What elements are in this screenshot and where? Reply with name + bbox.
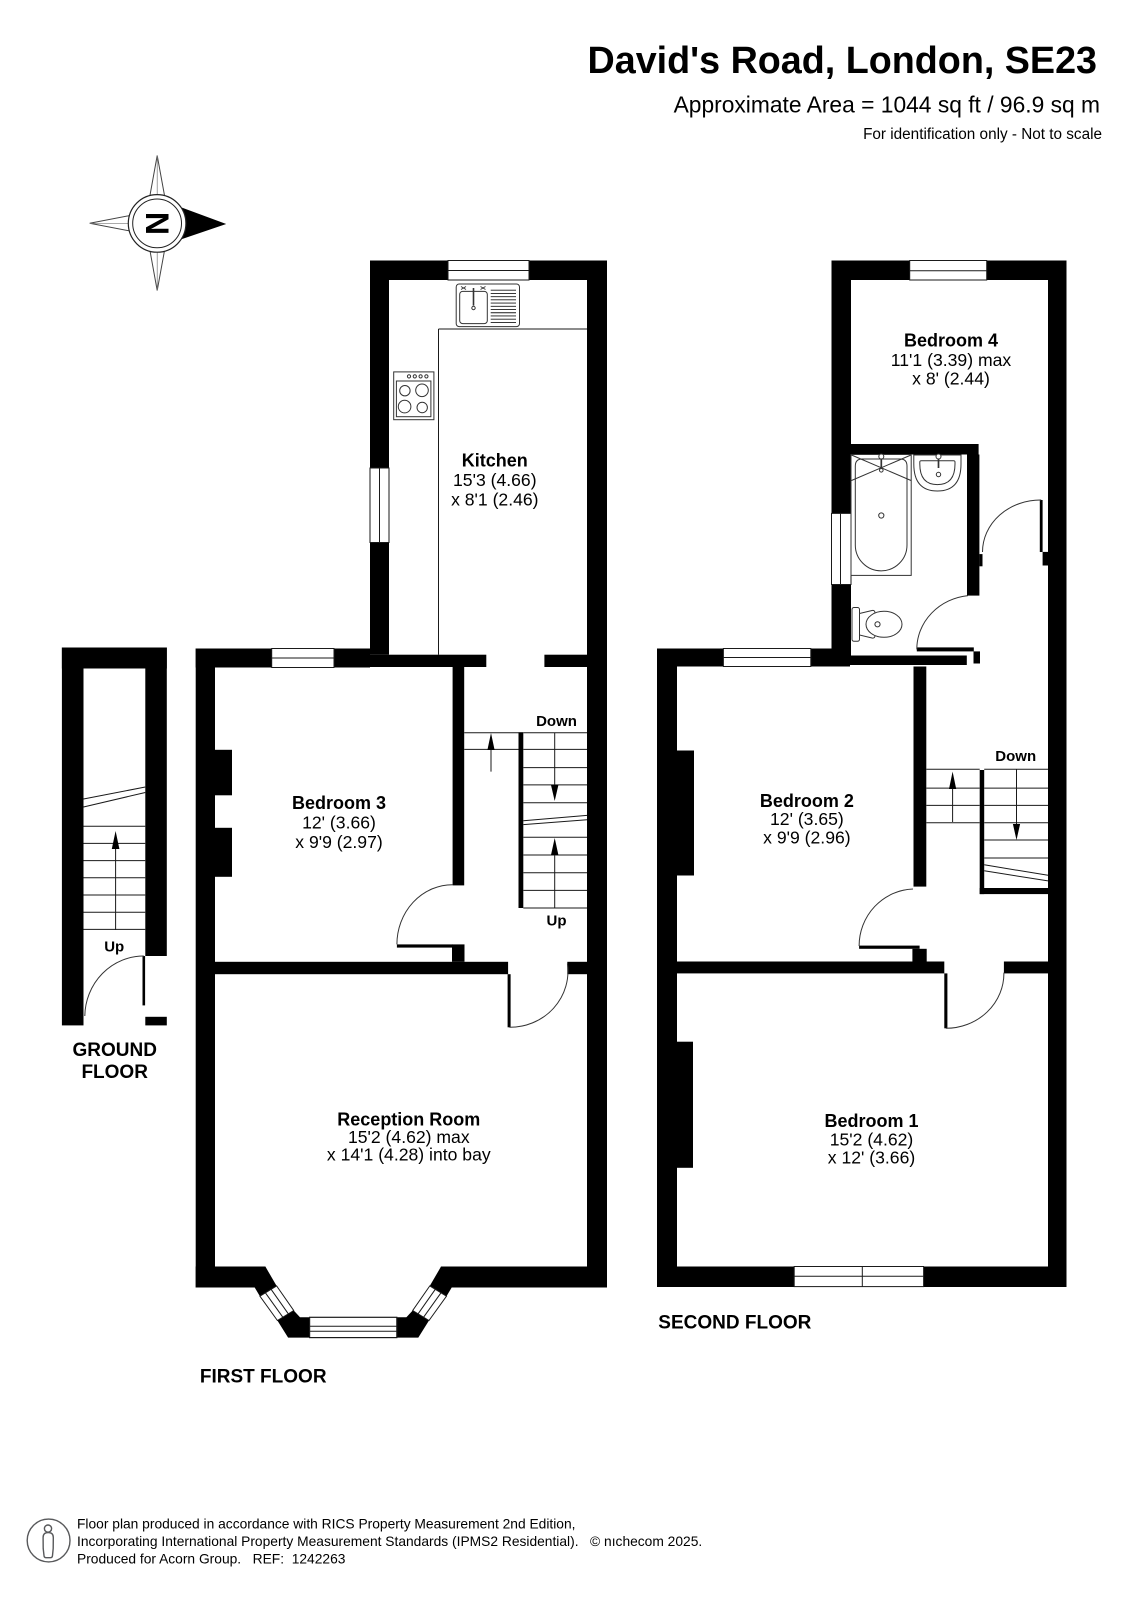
svg-text:Approximate Area = 1044 sq ft: Approximate Area = 1044 sq ft / 96.9 sq … [674,92,1100,118]
svg-text:FIRST FLOOR: FIRST FLOOR [200,1367,327,1388]
svg-text:Floor plan produced in accorda: Floor plan produced in accordance with R… [77,1516,575,1531]
svg-text:Produced for Acorn Group. RE: Produced for Acorn Group. REF: 1242263 [77,1552,346,1567]
svg-text:x 8'1 (2.46): x 8'1 (2.46) [451,490,538,510]
svg-text:Bedroom 1: Bedroom 1 [824,1111,918,1131]
svg-text:12' (3.65): 12' (3.65) [770,809,844,829]
svg-text:For identification only - Not: For identification only - Not to scale [863,126,1102,143]
svg-text:David's Road, London, SE23: David's Road, London, SE23 [588,39,1097,81]
svg-text:FLOOR: FLOOR [81,1062,148,1083]
svg-text:Bedroom 2: Bedroom 2 [760,791,854,811]
svg-text:x 8' (2.44): x 8' (2.44) [912,369,990,389]
svg-text:x 9'9 (2.96): x 9'9 (2.96) [763,828,850,848]
svg-text:Bedroom 3: Bedroom 3 [292,793,386,813]
svg-text:Up: Up [547,913,567,930]
svg-text:x 12' (3.66): x 12' (3.66) [828,1148,915,1168]
svg-text:15'2 (4.62): 15'2 (4.62) [830,1129,914,1149]
svg-text:SECOND FLOOR: SECOND FLOOR [658,1312,811,1333]
svg-text:Down: Down [536,713,577,730]
svg-text:Up: Up [104,939,124,956]
svg-text:Bedroom 4: Bedroom 4 [904,331,998,351]
svg-text:x 14'1 (4.28) into bay: x 14'1 (4.28) into bay [327,1145,491,1165]
svg-text:x 9'9 (2.97): x 9'9 (2.97) [295,832,382,852]
svg-text:11'1 (3.39) max: 11'1 (3.39) max [891,350,1012,370]
svg-text:GROUND: GROUND [72,1040,156,1061]
svg-text:15'3 (4.66): 15'3 (4.66) [453,470,537,490]
svg-text:Down: Down [995,748,1036,765]
svg-text:12' (3.66): 12' (3.66) [302,813,376,833]
svg-text:N: N [139,212,175,235]
svg-text:Incorporating International Pr: Incorporating International Property Mea… [77,1534,702,1549]
svg-text:Kitchen: Kitchen [462,451,528,471]
